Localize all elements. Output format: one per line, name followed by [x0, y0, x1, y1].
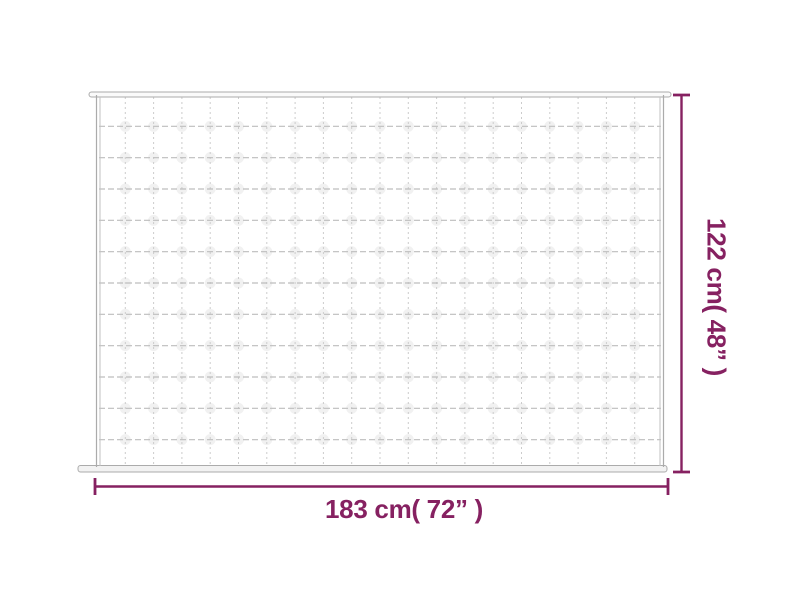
blanket-top-edge [89, 92, 671, 97]
blanket-bottom-edge [78, 466, 667, 473]
product-image: 183 cm( 72” ) 122 cm( 48” ) [0, 0, 800, 600]
height-dimension-label: 122 cm( 48” ) [701, 218, 732, 376]
width-dimension-label: 183 cm( 72” ) [325, 494, 483, 525]
